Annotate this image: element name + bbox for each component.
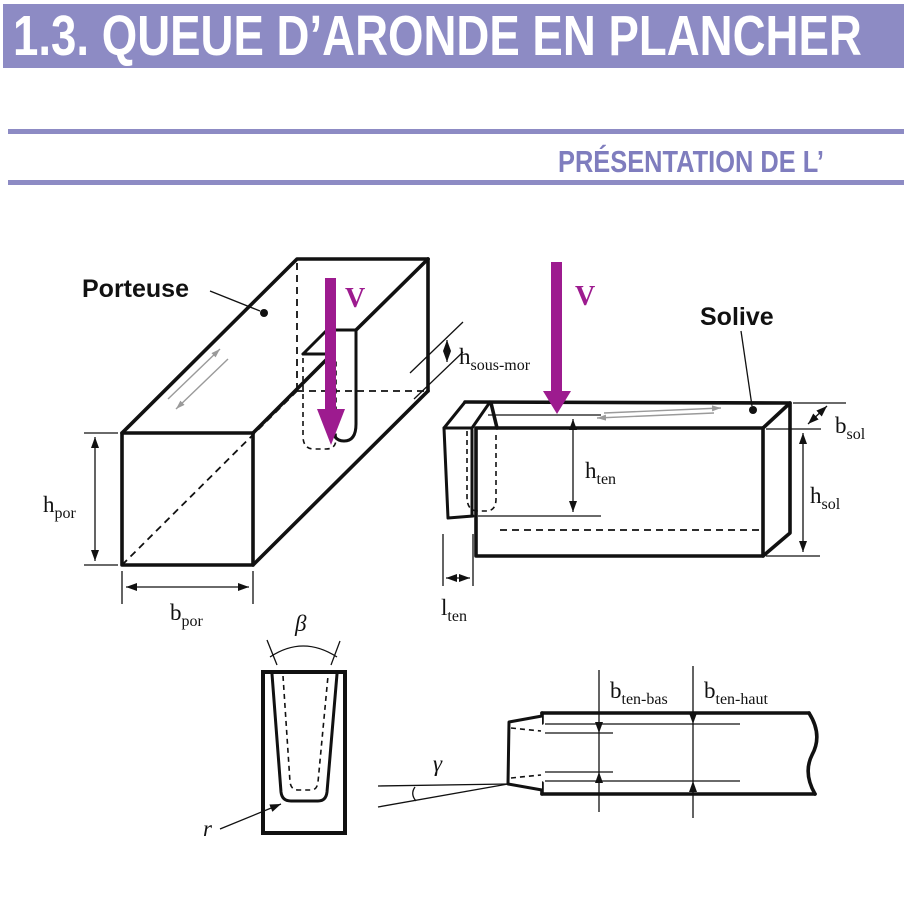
grain-direction-icon	[597, 408, 721, 418]
dim-label-l-ten: lten	[441, 595, 467, 625]
dim-beta: β	[267, 611, 340, 665]
porteuse-leader-dot	[260, 309, 268, 317]
solive-leader-dot	[749, 406, 757, 414]
porteuse-label: Porteuse	[82, 275, 189, 303]
solive-beam: hten lten bsol hsol Solive	[441, 262, 866, 625]
dim-label-h-ten: hten	[585, 458, 616, 488]
dim-gamma: γ	[378, 751, 508, 807]
dim-b-ten-bas: bten-bas	[595, 670, 668, 812]
dim-label-b-ten-bas: bten-bas	[610, 678, 668, 708]
document-page: { "header": { "title": "1.3. QUEUE D\u20…	[0, 0, 904, 924]
solive-label: Solive	[700, 303, 774, 331]
radius-label: r	[203, 816, 213, 841]
dim-b-por: bpor	[122, 571, 253, 630]
dim-h-sol: hsol	[766, 433, 841, 556]
dim-h-ten: hten	[478, 415, 616, 516]
break-line	[808, 713, 817, 794]
dovetail-section-view: β r	[203, 611, 345, 841]
porteuse-beam: hpor bpor hsous-mor Porteuse V	[43, 259, 531, 630]
dim-label-h-por: hpor	[43, 492, 77, 522]
force-label-porteuse: V	[345, 283, 365, 314]
joint-figure: hpor bpor hsous-mor Porteuse V	[0, 0, 904, 924]
solive-leader-line	[741, 331, 752, 406]
force-label-solive: V	[575, 281, 595, 312]
dim-label-b-por: bpor	[170, 600, 204, 630]
angle-label-beta: β	[294, 611, 307, 636]
tenon-plan-view: bten-bas bten-haut γ	[378, 666, 817, 818]
dim-label-b-ten-haut: bten-haut	[704, 678, 768, 708]
dim-h-por: hpor	[43, 433, 118, 565]
force-arrow-solive: V	[543, 262, 595, 414]
dim-label-h-sol: hsol	[810, 483, 841, 513]
dim-l-ten: lten	[441, 534, 473, 625]
dim-label-b-sol: bsol	[835, 413, 866, 443]
dim-label-h-sous-mor: hsous-mor	[459, 344, 531, 374]
angle-label-gamma: γ	[433, 751, 443, 776]
dim-radius: r	[203, 804, 281, 841]
